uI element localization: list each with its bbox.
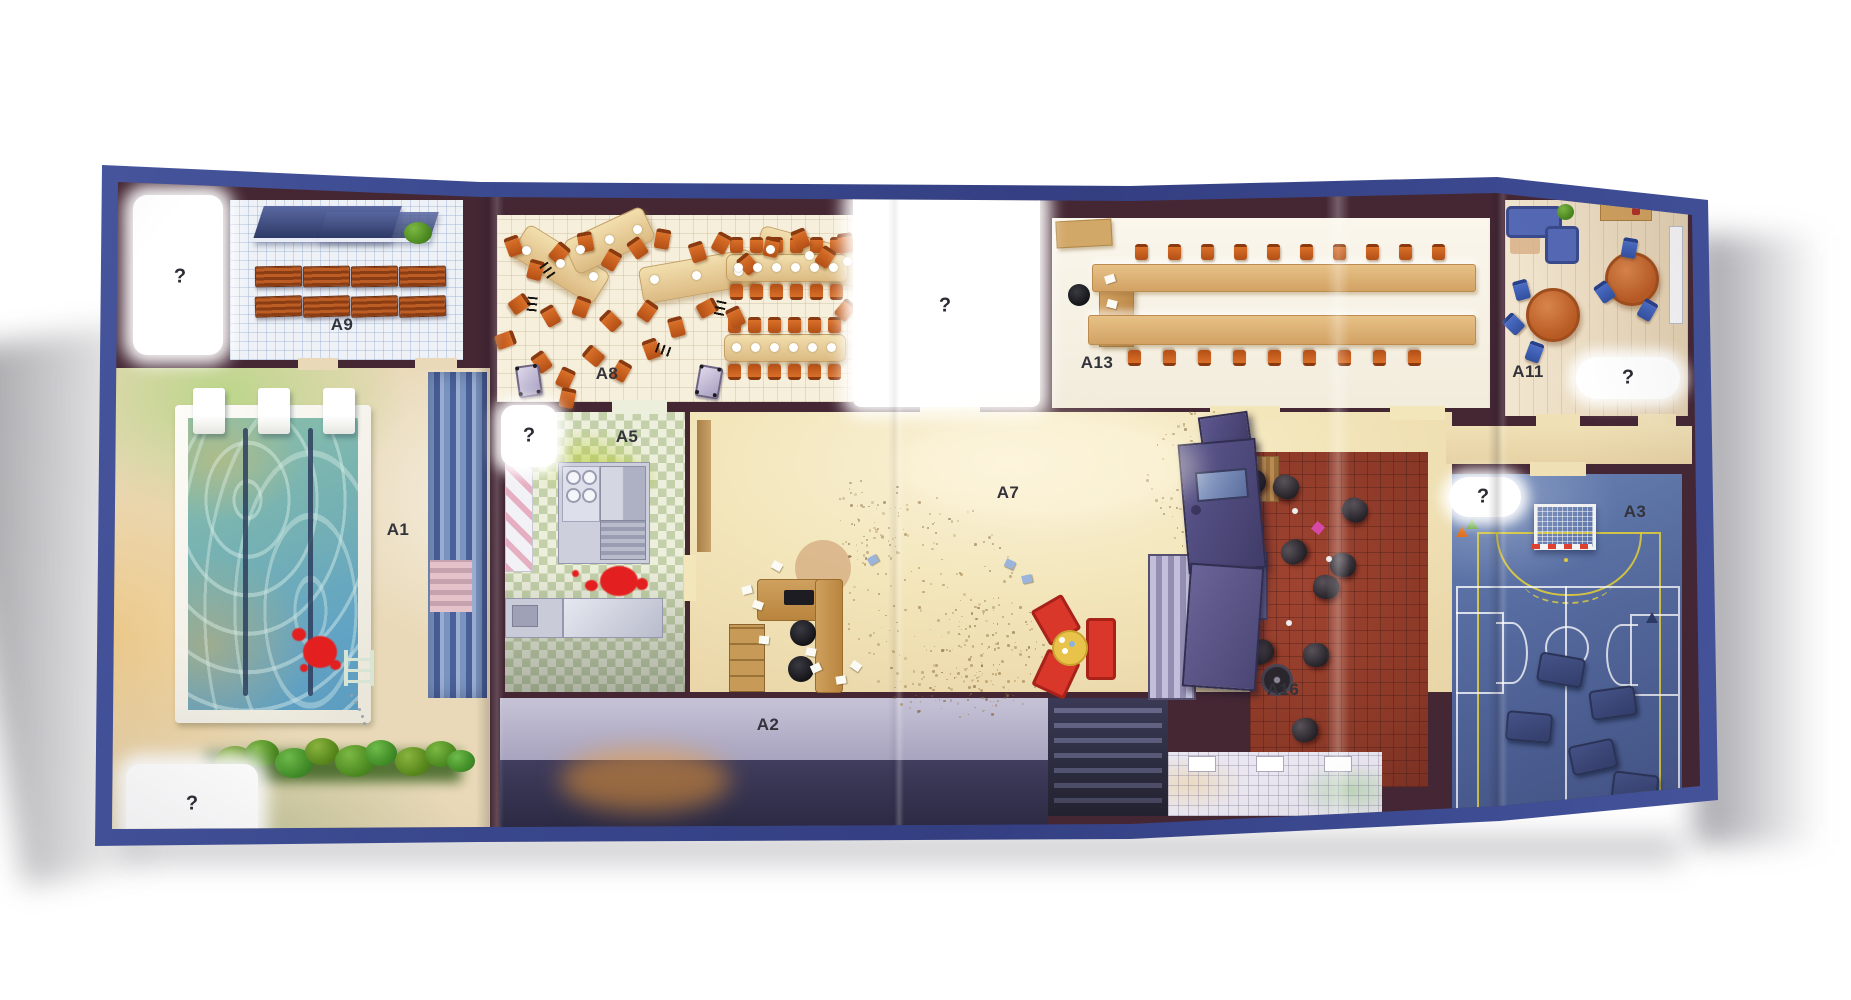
doorway	[415, 358, 457, 370]
dirt-speckle	[967, 699, 969, 701]
dirt-speckle	[845, 541, 847, 543]
tipped-chair-legs	[526, 297, 537, 314]
question-marker-icon: ?	[523, 425, 535, 448]
outer-corridor	[500, 760, 1048, 830]
dirt-speckle	[860, 480, 862, 482]
dirt-speckle	[842, 543, 844, 545]
round-table	[1526, 288, 1580, 342]
dirt-speckle	[934, 686, 935, 687]
cafeteria-chair	[728, 364, 741, 380]
hedge-bush	[305, 738, 339, 765]
dirt-speckle	[968, 658, 971, 661]
board-game-floorplan: A9 A1 A8 A5 A7 A2 A13 A11 A16 A3 ? ? ? ?…	[0, 0, 1851, 1000]
dirt-speckle	[992, 606, 995, 609]
stair-step	[1054, 798, 1162, 803]
dirt-speckle	[1169, 506, 1171, 508]
dirt-speckle	[927, 527, 929, 529]
dirt-speckle	[935, 532, 936, 533]
dirt-speckle	[1176, 489, 1179, 492]
question-marker-icon: ?	[1622, 367, 1634, 390]
plate-icon	[556, 259, 565, 268]
dirt-speckle	[971, 680, 973, 682]
dirt-speckle	[981, 697, 983, 699]
cafeteria-chair	[788, 364, 801, 380]
dirt-speckle	[968, 635, 971, 638]
dirt-speckle	[904, 685, 907, 688]
dirt-speckle	[1012, 695, 1014, 697]
dirt-speckle	[968, 686, 971, 689]
doorway	[684, 555, 696, 601]
dirt-speckle	[866, 551, 868, 553]
dirt-speckle	[961, 629, 962, 630]
door-knob-icon	[1191, 505, 1201, 515]
dirt-speckle	[977, 680, 979, 682]
kitchen-door	[505, 462, 533, 572]
dirt-speckle	[1006, 635, 1008, 637]
dirt-speckle	[1012, 631, 1015, 634]
plant-icon	[404, 222, 432, 244]
dirt-speckle	[986, 634, 989, 637]
dirt-speckle	[842, 497, 845, 500]
chain-dot	[358, 708, 361, 711]
cafeteria-chair	[748, 317, 761, 333]
cafeteria-chair	[558, 387, 577, 410]
classroom-chair	[1198, 350, 1211, 366]
plate-icon	[770, 343, 779, 352]
dirt-speckle	[990, 701, 991, 702]
dirt-speckle	[1009, 575, 1011, 577]
dirt-speckle	[1147, 474, 1149, 476]
dirt-speckle	[930, 650, 932, 652]
teacher-chair	[1068, 284, 1090, 306]
plate-icon	[751, 343, 760, 352]
sink-basin	[512, 605, 538, 627]
dirt-speckle	[904, 533, 907, 536]
plate-icon	[766, 245, 775, 254]
cafeteria-chair	[750, 284, 763, 300]
classroom-chair	[1432, 244, 1445, 260]
dirt-speckle	[873, 653, 875, 655]
cup-icon	[1059, 637, 1065, 643]
goal-bar	[1532, 544, 1592, 549]
dirt-speckle	[1163, 513, 1165, 515]
room-label-a16: A16	[1267, 680, 1299, 700]
classroom-chair	[1201, 244, 1214, 260]
dirt-speckle	[980, 654, 982, 656]
dirt-speckle	[854, 524, 856, 526]
dirt-speckle	[897, 630, 899, 632]
dirt-speckle	[1011, 572, 1013, 574]
room-label-a3: A3	[1624, 502, 1647, 522]
dirt-speckle	[980, 689, 983, 692]
cafeteria-chair	[828, 364, 841, 380]
bookcase	[729, 624, 765, 692]
dirt-speckle	[999, 547, 1001, 549]
stage-door-panel	[1182, 563, 1264, 692]
dirt-speckle	[989, 570, 991, 572]
cafeteria-chair	[768, 364, 781, 380]
doorway	[1390, 406, 1445, 420]
dirt-speckle	[936, 543, 938, 545]
dirt-speckle	[997, 647, 999, 649]
dirt-speckle	[1146, 479, 1149, 482]
dirt-speckle	[981, 662, 982, 663]
plate-icon	[843, 257, 852, 266]
dirt-speckle	[992, 684, 994, 686]
dirt-speckle	[922, 544, 923, 545]
dirt-speckle	[932, 670, 935, 673]
cafeteria-chair	[770, 284, 783, 300]
classroom-chair	[1267, 244, 1280, 260]
dirt-speckle	[931, 695, 933, 697]
plate-icon	[576, 245, 585, 254]
dirt-speckle	[1155, 499, 1158, 502]
stair-step	[1054, 738, 1162, 743]
beanbag	[1303, 643, 1330, 668]
dirt-speckle	[903, 529, 904, 530]
lane-line	[243, 428, 248, 696]
hedge-bush	[365, 740, 397, 766]
dirt-speckle	[974, 675, 976, 677]
dirt-speckle	[853, 586, 855, 588]
burner-icon	[566, 488, 581, 503]
classroom-chair	[1135, 244, 1148, 260]
dirt-speckle	[975, 618, 977, 620]
dirt-speckle	[969, 695, 971, 697]
cafeteria-chair	[808, 364, 821, 380]
dirt-speckle	[922, 696, 923, 697]
dirt-speckle	[994, 549, 995, 550]
dirt-speckle	[866, 544, 868, 546]
classroom-desk-row	[1088, 315, 1476, 345]
classroom-chair	[1233, 350, 1246, 366]
dirt-speckle	[918, 606, 921, 609]
dirt-speckle	[964, 668, 967, 671]
dirt-speckle	[992, 634, 994, 636]
dirt-speckle	[1014, 680, 1016, 682]
dirt-speckle	[956, 573, 958, 575]
dirt-speckle	[974, 543, 977, 546]
dirt-speckle	[935, 664, 938, 667]
dirt-speckle	[922, 580, 924, 582]
dirt-speckle	[915, 695, 916, 696]
dirt-speckle	[857, 559, 858, 560]
classroom-chair	[1303, 350, 1316, 366]
dirt-speckle	[953, 534, 956, 537]
dirt-speckle	[892, 538, 894, 540]
wooden-bench	[399, 266, 446, 288]
dirt-speckle	[998, 672, 1001, 675]
dirt-speckle	[885, 573, 887, 575]
red-sofa	[1086, 618, 1116, 680]
dirt-speckle	[850, 504, 853, 507]
paper	[835, 675, 846, 685]
dirt-speckle	[957, 702, 960, 705]
dirt-speckle	[890, 557, 892, 559]
dirt-speckle	[931, 548, 934, 551]
cone-icon	[1466, 518, 1478, 529]
dirt-speckle	[993, 664, 994, 665]
plate-icon	[827, 343, 836, 352]
shadow-right	[1695, 235, 1845, 845]
dirt-speckle	[998, 604, 1000, 606]
plate-icon	[810, 263, 819, 272]
dirt-speckle	[1002, 616, 1004, 618]
rug	[1510, 236, 1540, 254]
cafeteria-chair	[768, 317, 781, 333]
round-coffee-table	[1052, 630, 1088, 666]
plate-icon	[734, 263, 743, 272]
cafeteria-chair	[830, 284, 843, 300]
dirt-speckle	[977, 607, 980, 610]
dirt-speckle	[984, 600, 985, 601]
dirt-speckle	[1184, 428, 1187, 431]
dirt-speckle	[1172, 444, 1174, 446]
dirt-speckle	[878, 593, 880, 595]
litter-icon	[1326, 556, 1332, 562]
dirt-speckle	[869, 634, 872, 637]
dirt-speckle	[1019, 606, 1022, 609]
chain-dot	[354, 701, 357, 704]
classroom-chair	[1408, 350, 1421, 366]
dirt-speckle	[984, 566, 985, 567]
chain-dot	[363, 722, 366, 725]
dirt-speckle	[885, 615, 887, 617]
doorway	[1536, 414, 1580, 428]
dirt-speckle	[963, 593, 966, 596]
stage-door-panel	[1177, 438, 1266, 574]
cup-icon	[1062, 648, 1068, 654]
dirt-speckle	[848, 623, 850, 625]
dirt-speckle	[970, 693, 972, 695]
dirt-speckle	[1177, 425, 1180, 428]
dirt-speckle	[947, 631, 950, 634]
cafeteria-chair	[730, 284, 743, 300]
plate-icon	[808, 343, 817, 352]
dirt-speckle	[972, 645, 974, 647]
question-marker-icon: ?	[174, 266, 186, 289]
court-key-arc-right	[1606, 624, 1638, 686]
dirt-speckle	[958, 645, 960, 647]
classroom-chair	[1234, 244, 1247, 260]
dirt-speckle	[930, 583, 932, 585]
stall-door	[1324, 756, 1352, 772]
dirt-speckle	[900, 703, 903, 706]
cafeteria-chair	[810, 284, 823, 300]
dirt-speckle	[861, 542, 863, 544]
plate-icon	[789, 343, 798, 352]
wall-counter	[697, 420, 711, 552]
classroom-chair	[1168, 244, 1181, 260]
blood-splatter	[600, 566, 638, 596]
blood-stain	[300, 664, 308, 672]
office-chair	[790, 620, 816, 646]
classroom-chair	[1333, 244, 1346, 260]
court-mid-line	[1565, 586, 1567, 806]
cafeteria-chair	[730, 237, 743, 253]
dirt-speckle	[950, 688, 953, 691]
doorway	[298, 358, 338, 370]
classroom-cabinet	[1055, 219, 1112, 249]
dirt-speckle	[1025, 621, 1027, 623]
dirt-speckle	[924, 646, 925, 647]
classroom-chair	[1163, 350, 1176, 366]
whiteboard	[1669, 226, 1683, 324]
dirt-speckle	[995, 704, 997, 706]
dirt-speckle	[932, 689, 935, 692]
dirt-speckle	[890, 667, 892, 669]
dirt-speckle	[866, 539, 868, 541]
dirt-speckle	[871, 501, 874, 504]
dirt-speckle	[1014, 646, 1017, 649]
blood-splatter	[572, 570, 579, 577]
cafeteria-chair	[828, 317, 841, 333]
dirt-speckle	[935, 674, 938, 677]
room-label-a8: A8	[596, 364, 619, 384]
chain-dot	[350, 694, 353, 697]
question-marker-icon: ?	[186, 793, 198, 816]
starting-block	[258, 388, 290, 434]
blood-stain	[330, 660, 341, 670]
dirt-speckle	[1165, 434, 1166, 435]
doorway	[1530, 462, 1586, 476]
cafeteria-chair	[808, 317, 821, 333]
dirt-speckle	[877, 573, 879, 575]
dirt-speckle	[922, 526, 924, 528]
stair-step	[1054, 708, 1162, 713]
door-window-icon	[1195, 468, 1249, 502]
dirt-speckle	[873, 537, 876, 540]
dirt-speckle	[848, 543, 849, 544]
plate-icon	[692, 271, 701, 280]
dirt-speckle	[883, 501, 886, 504]
hedge-bush	[245, 740, 279, 767]
wooden-bench	[255, 266, 302, 288]
dirt-speckle	[921, 671, 924, 674]
dirt-speckle	[877, 680, 879, 682]
room-label-a5: A5	[616, 427, 639, 447]
dirt-speckle	[888, 540, 889, 541]
wooden-bench	[399, 295, 447, 318]
plate-icon	[772, 263, 781, 272]
dirt-speckle	[877, 643, 880, 646]
room-label-a13: A13	[1081, 353, 1113, 373]
dirt-speckle	[848, 555, 851, 558]
starting-block	[193, 388, 225, 434]
cone-icon	[1646, 612, 1658, 623]
burner-icon	[582, 488, 597, 503]
wooden-bench	[351, 295, 399, 318]
dirt-speckle	[849, 482, 851, 484]
plate-icon	[732, 343, 741, 352]
dirt-speckle	[896, 486, 898, 488]
cafeteria-chair	[748, 364, 761, 380]
plate-icon	[605, 235, 614, 244]
dirt-speckle	[992, 543, 994, 545]
wooden-bench	[351, 266, 398, 288]
dirt-speckle	[1007, 680, 1010, 683]
plate-icon	[791, 263, 800, 272]
dirt-speckle	[957, 672, 960, 675]
classroom-chair	[1399, 244, 1412, 260]
dirt-speckle	[998, 597, 1000, 599]
bleacher-stairs	[430, 560, 472, 612]
stair-step	[1054, 753, 1162, 758]
pool-ladder-icon	[344, 650, 374, 686]
dirt-speckle	[904, 657, 907, 660]
dirt-speckle	[1182, 531, 1184, 533]
classroom-chair	[1128, 350, 1141, 366]
dirt-speckle	[892, 650, 894, 652]
dirt-speckle	[868, 652, 870, 654]
plate-icon	[805, 251, 814, 260]
monitor-icon	[784, 590, 814, 605]
dirt-speckle	[921, 678, 923, 680]
litter-icon	[1292, 508, 1298, 514]
classroom-chair	[1338, 350, 1351, 366]
cafeteria-chair	[837, 232, 855, 254]
armchair	[1545, 226, 1579, 264]
dirt-speckle	[1019, 653, 1022, 656]
dirt-speckle	[993, 623, 994, 624]
dirt-speckle	[849, 592, 851, 594]
chain-dot	[361, 715, 364, 718]
stall-door	[1256, 756, 1284, 772]
room-label-a2: A2	[757, 715, 780, 735]
dirt-speckle	[993, 701, 995, 703]
dirt-speckle	[974, 606, 977, 609]
burner-icon	[582, 470, 597, 485]
dirt-speckle	[1006, 694, 1009, 697]
question-marker-icon: ?	[1477, 486, 1489, 509]
dirt-speckle	[1026, 649, 1027, 650]
dirt-speckle	[1003, 580, 1006, 583]
room-label-a7: A7	[997, 483, 1020, 503]
litter-icon	[1286, 620, 1292, 626]
cafeteria-chair	[750, 237, 763, 253]
dirt-speckle	[862, 506, 864, 508]
room-label-a11: A11	[1512, 362, 1543, 382]
serving-cart	[515, 363, 543, 398]
dirt-speckle	[878, 610, 879, 611]
room-label-a1: A1	[387, 520, 410, 540]
dirt-speckle	[919, 710, 921, 712]
dirt-speckle	[993, 610, 994, 611]
dirt-speckle	[1191, 413, 1193, 415]
plate-icon	[753, 263, 762, 272]
plant-icon	[1557, 204, 1574, 220]
burner-icon	[566, 470, 581, 485]
dirt-speckle	[1001, 660, 1004, 663]
penalty-dot	[1564, 558, 1568, 562]
dirt-speckle	[839, 498, 841, 500]
stair-step	[1054, 783, 1162, 788]
classroom-chair	[1366, 244, 1379, 260]
stall-door	[1188, 756, 1216, 772]
classroom-chair	[1268, 350, 1281, 366]
stair-step	[1054, 723, 1162, 728]
dirt-speckle	[965, 639, 968, 642]
dirt-speckle	[1157, 444, 1158, 445]
dirt-speckle	[963, 680, 965, 682]
starting-block	[323, 388, 355, 434]
dirt-speckle	[913, 670, 915, 672]
dirt-speckle	[1179, 508, 1182, 511]
court-key-arc-left	[1496, 622, 1528, 684]
dirt-speckle	[881, 535, 884, 538]
dirt-speckle	[906, 504, 908, 506]
blood-stain	[292, 628, 306, 641]
